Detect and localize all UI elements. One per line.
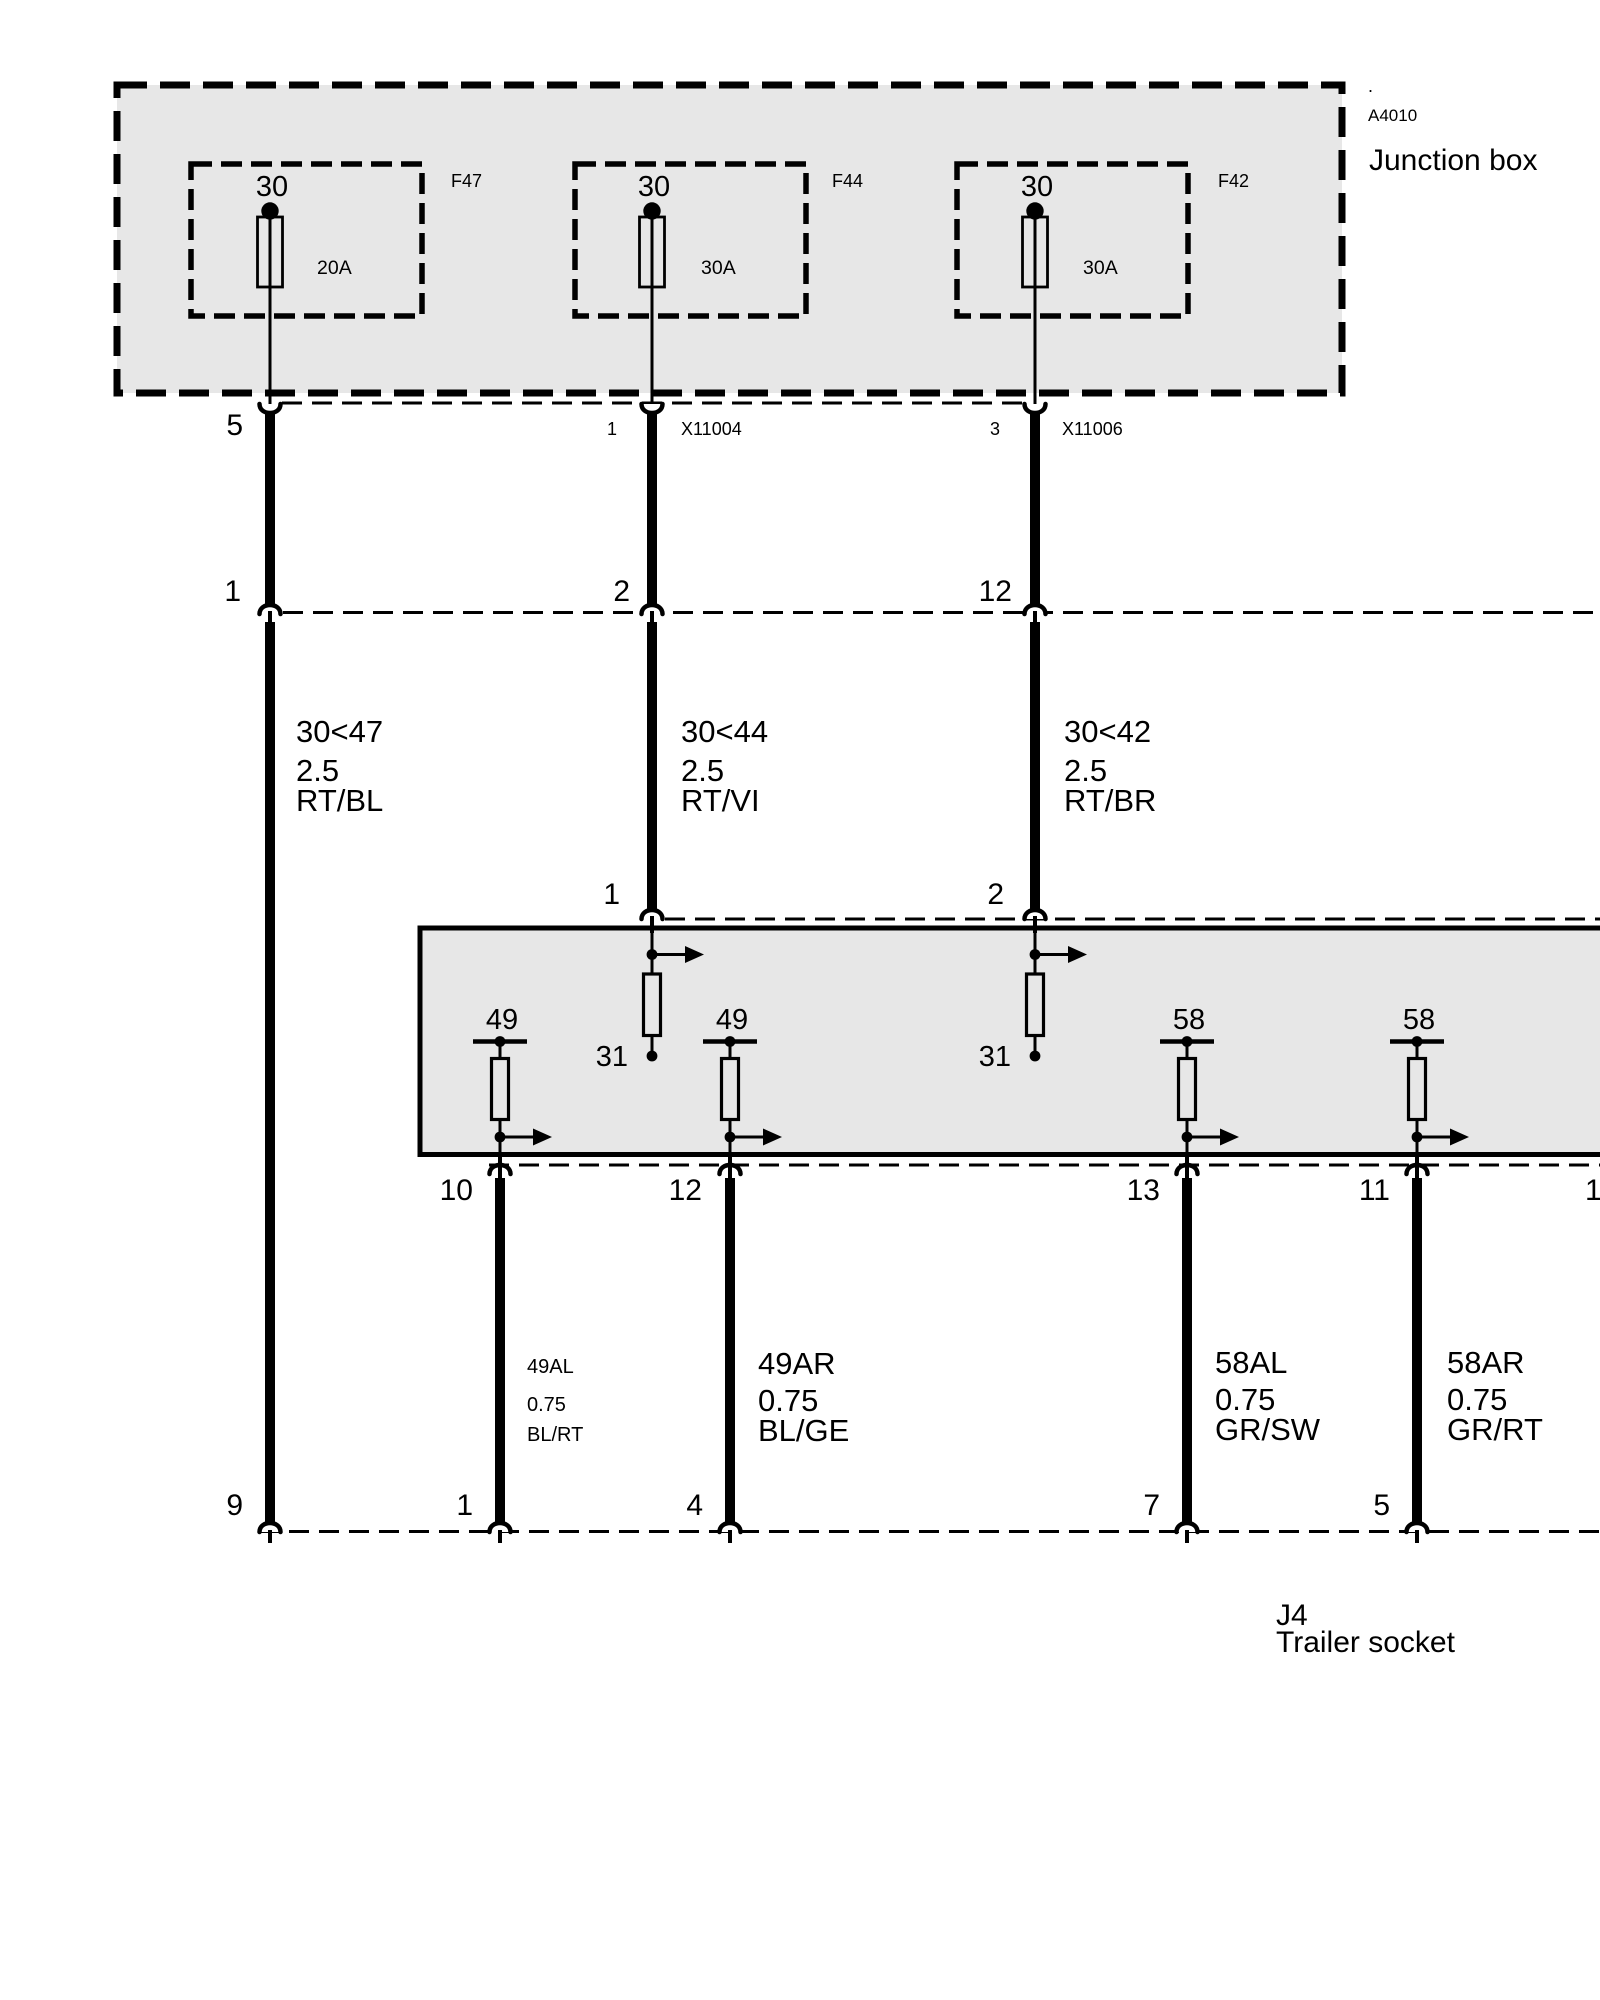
- svg-text:58AL: 58AL: [1215, 1345, 1287, 1380]
- svg-text:1: 1: [456, 1489, 473, 1522]
- svg-text:5: 5: [1373, 1489, 1390, 1522]
- svg-text:Trailer socket: Trailer socket: [1276, 1626, 1456, 1659]
- svg-text:31: 31: [979, 1041, 1011, 1073]
- svg-text:2: 2: [987, 878, 1004, 911]
- svg-text:0.75: 0.75: [527, 1394, 566, 1416]
- svg-text:1: 1: [607, 419, 617, 439]
- svg-text:2: 2: [613, 575, 630, 608]
- svg-text:F42: F42: [1218, 171, 1249, 191]
- svg-text:5: 5: [226, 409, 243, 442]
- svg-text:49: 49: [716, 1004, 748, 1036]
- svg-text:Junction box: Junction box: [1369, 144, 1537, 177]
- svg-text:9: 9: [226, 1489, 243, 1522]
- svg-text:A4010: A4010: [1368, 106, 1417, 125]
- svg-text:X11004: X11004: [681, 419, 742, 439]
- svg-text:30A: 30A: [1083, 257, 1118, 279]
- svg-text:F47: F47: [451, 171, 482, 191]
- svg-text:30A: 30A: [701, 257, 736, 279]
- svg-text:.: .: [1368, 76, 1373, 96]
- svg-text:11: 11: [1359, 1174, 1390, 1207]
- svg-text:30: 30: [638, 171, 670, 203]
- svg-text:30: 30: [256, 171, 288, 203]
- svg-text:BL/GE: BL/GE: [758, 1413, 849, 1448]
- svg-text:GR/RT: GR/RT: [1447, 1412, 1543, 1447]
- svg-text:12: 12: [669, 1174, 702, 1207]
- svg-text:20A: 20A: [317, 257, 352, 279]
- svg-text:RT/VI: RT/VI: [681, 783, 760, 818]
- svg-text:49AR: 49AR: [758, 1346, 836, 1381]
- svg-text:58: 58: [1403, 1004, 1435, 1036]
- svg-text:30<44: 30<44: [681, 714, 768, 749]
- svg-text:1: 1: [224, 575, 241, 608]
- svg-text:49: 49: [486, 1004, 518, 1036]
- svg-text:30: 30: [1021, 171, 1053, 203]
- svg-text:3: 3: [990, 419, 1000, 439]
- svg-text:1: 1: [1585, 1174, 1600, 1207]
- svg-text:RT/BL: RT/BL: [296, 783, 383, 818]
- svg-text:49AL: 49AL: [527, 1356, 574, 1378]
- svg-text:F44: F44: [832, 171, 863, 191]
- svg-text:10: 10: [440, 1174, 473, 1207]
- svg-text:13: 13: [1127, 1174, 1160, 1207]
- svg-text:4: 4: [686, 1489, 703, 1522]
- svg-text:X11006: X11006: [1062, 419, 1123, 439]
- svg-text:RT/BR: RT/BR: [1064, 783, 1156, 818]
- svg-text:58: 58: [1173, 1004, 1205, 1036]
- svg-text:30<42: 30<42: [1064, 714, 1151, 749]
- svg-text:7: 7: [1143, 1489, 1160, 1522]
- svg-text:31: 31: [596, 1041, 628, 1073]
- svg-text:GR/SW: GR/SW: [1215, 1412, 1321, 1447]
- svg-text:12: 12: [979, 575, 1012, 608]
- svg-text:30<47: 30<47: [296, 714, 383, 749]
- svg-text:1: 1: [603, 878, 620, 911]
- svg-text:BL/RT: BL/RT: [527, 1424, 583, 1446]
- svg-text:58AR: 58AR: [1447, 1345, 1525, 1380]
